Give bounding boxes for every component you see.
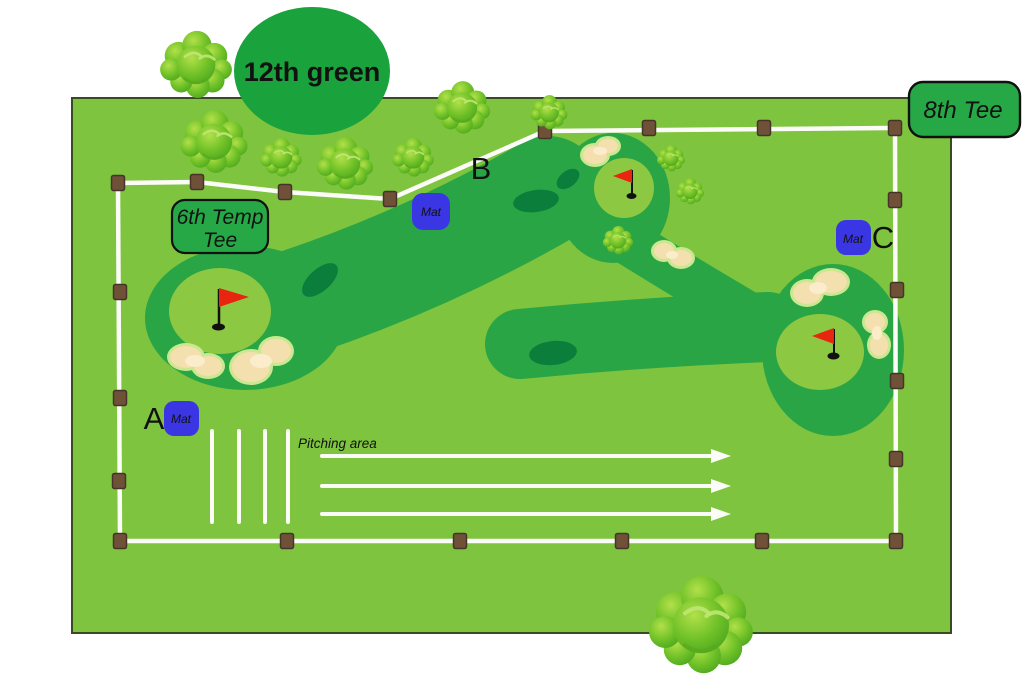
fence-post: [643, 121, 656, 136]
mat-b-label: Mat: [421, 205, 442, 219]
tee8-box: 8th Tee: [909, 82, 1020, 137]
point-a-label: A: [144, 401, 165, 436]
flag-hole: [627, 193, 637, 199]
tee6-label-line1: 6th Temp: [177, 206, 264, 229]
point-c-label: C: [872, 220, 894, 255]
flag-hole: [828, 353, 840, 360]
tree-icon: [160, 31, 232, 98]
fence-post: [112, 176, 125, 191]
pitching-area-label: Pitching area: [298, 436, 377, 451]
fence-post: [454, 534, 467, 549]
fence-post: [891, 283, 904, 298]
fence-post: [384, 192, 397, 207]
green12-label: 12th green: [244, 57, 381, 87]
fence-post: [281, 534, 294, 549]
flag-hole: [212, 324, 225, 331]
green-upper: [594, 158, 654, 218]
tee6-box: 6th Temp Tee: [172, 200, 268, 253]
fence-post: [890, 534, 903, 549]
green-right: [776, 314, 864, 390]
mat-a-label: Mat: [171, 412, 192, 426]
fence-post: [889, 121, 902, 136]
point-b-label: B: [471, 151, 492, 186]
fence-post: [191, 175, 204, 190]
fence-post: [114, 285, 127, 300]
fence-post: [889, 193, 902, 208]
tee6-label-line2: Tee: [203, 229, 237, 252]
fence-post: [616, 534, 629, 549]
fence-post: [113, 474, 126, 489]
fence-post: [114, 391, 127, 406]
fence-post: [114, 534, 127, 549]
golf-course-map: Pitching area 12th green 6th Temp Tee 8t…: [0, 0, 1024, 683]
tee8-label: 8th Tee: [923, 97, 1002, 124]
fence-post: [758, 121, 771, 136]
fence-post: [891, 374, 904, 389]
mat-c-label: Mat: [843, 232, 864, 246]
fence-post: [279, 185, 292, 200]
fence-post: [890, 452, 903, 467]
fence-post: [756, 534, 769, 549]
